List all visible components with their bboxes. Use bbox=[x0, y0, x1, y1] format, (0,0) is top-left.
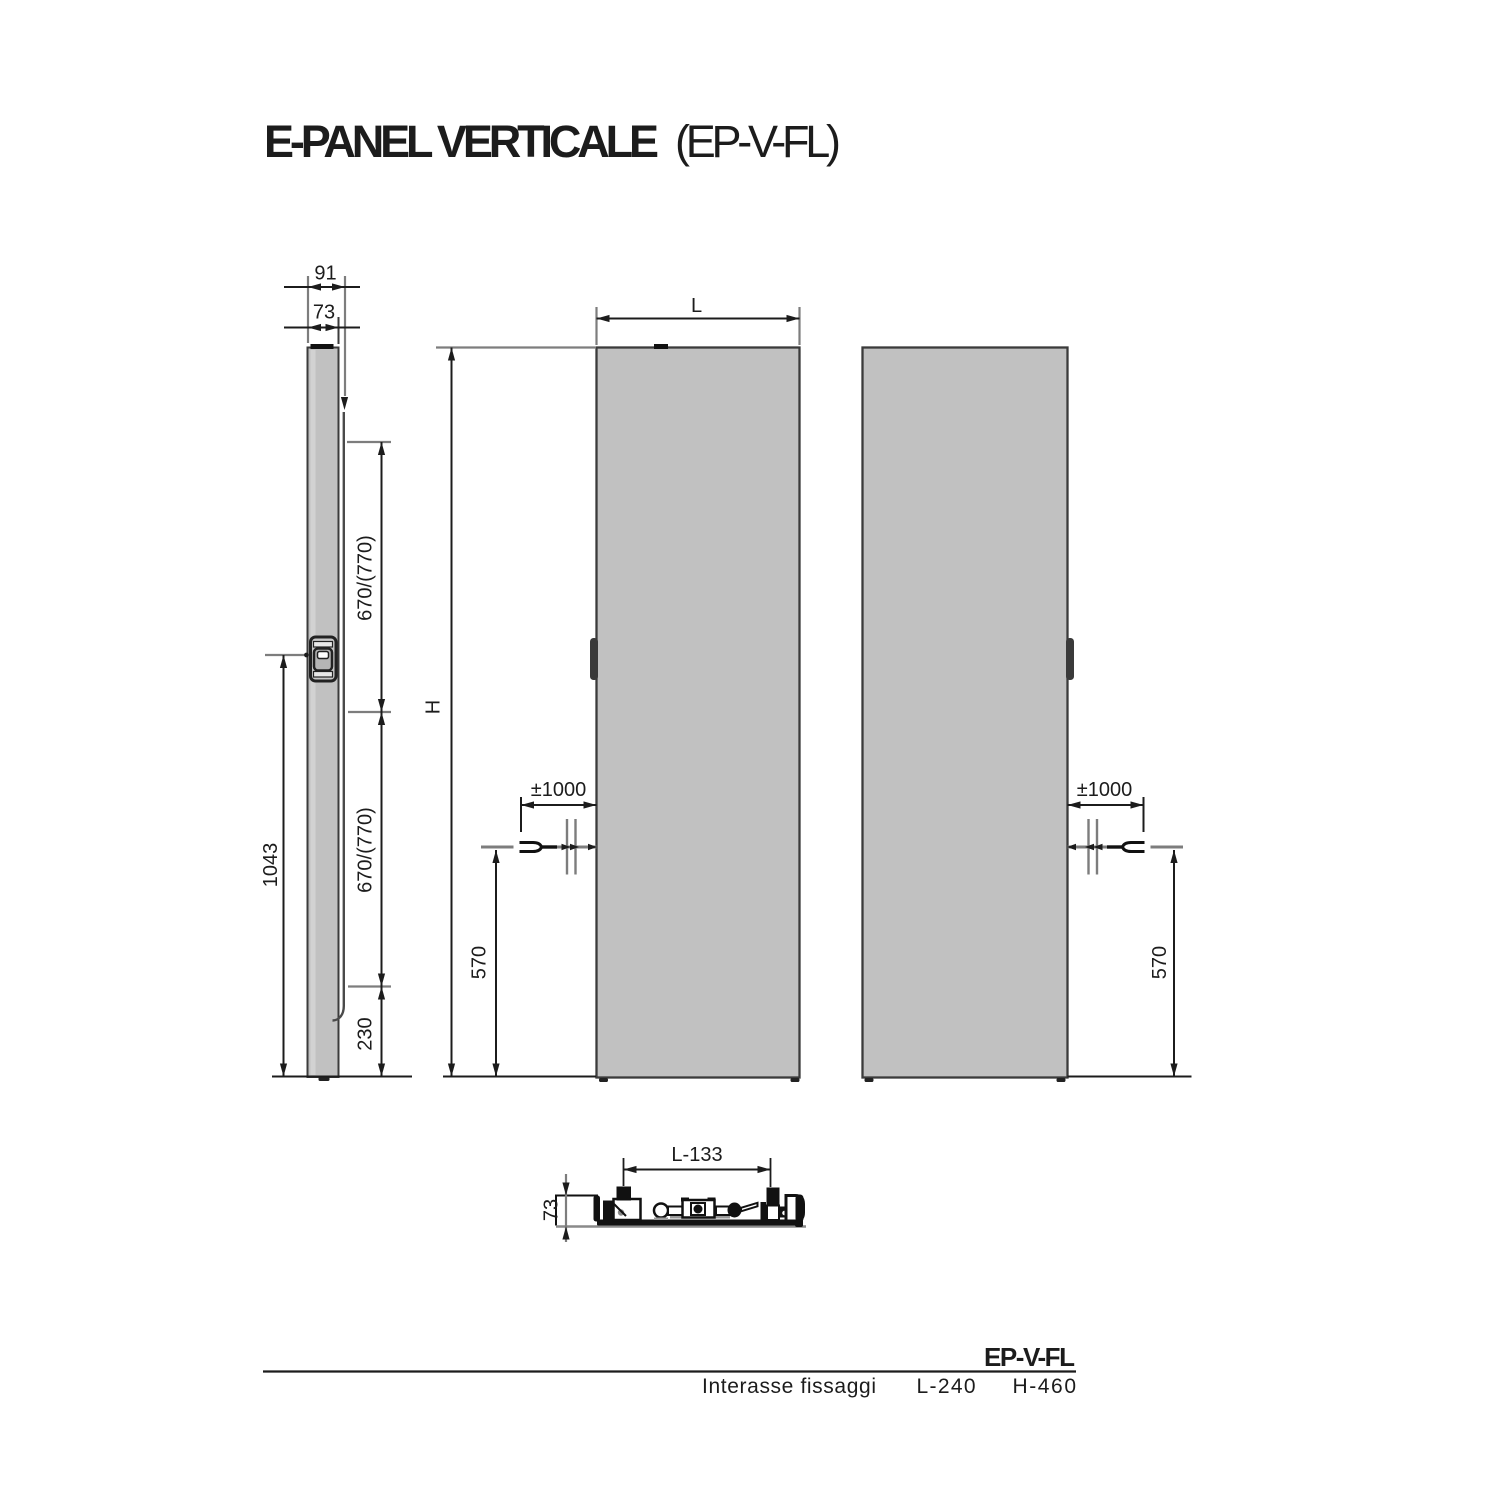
svg-text:230: 230 bbox=[355, 1017, 377, 1050]
svg-text:1043: 1043 bbox=[260, 843, 282, 888]
svg-text:±1000: ±1000 bbox=[531, 779, 586, 801]
svg-text:H: H bbox=[423, 700, 445, 714]
svg-text:EP-V-FL: EP-V-FL bbox=[984, 1342, 1075, 1372]
svg-text:L: L bbox=[691, 295, 702, 317]
svg-text:L-133: L-133 bbox=[671, 1144, 722, 1166]
svg-text:E-PANEL VERTICALE: E-PANEL VERTICALE bbox=[264, 116, 659, 167]
svg-text:91: 91 bbox=[314, 263, 336, 285]
svg-text:670/(770): 670/(770) bbox=[355, 535, 377, 621]
svg-text:570: 570 bbox=[469, 946, 491, 979]
svg-text:570: 570 bbox=[1149, 946, 1171, 979]
svg-text:±1000: ±1000 bbox=[1077, 779, 1132, 801]
svg-text:L-240: L-240 bbox=[917, 1375, 976, 1398]
svg-text:(EP-V-FL): (EP-V-FL) bbox=[675, 116, 841, 167]
svg-text:Interasse fissaggi: Interasse fissaggi bbox=[702, 1375, 876, 1398]
svg-text:73: 73 bbox=[313, 302, 335, 324]
svg-text:73: 73 bbox=[541, 1199, 563, 1221]
svg-text:H-460: H-460 bbox=[1013, 1375, 1077, 1398]
svg-text:670/(770): 670/(770) bbox=[355, 807, 377, 893]
